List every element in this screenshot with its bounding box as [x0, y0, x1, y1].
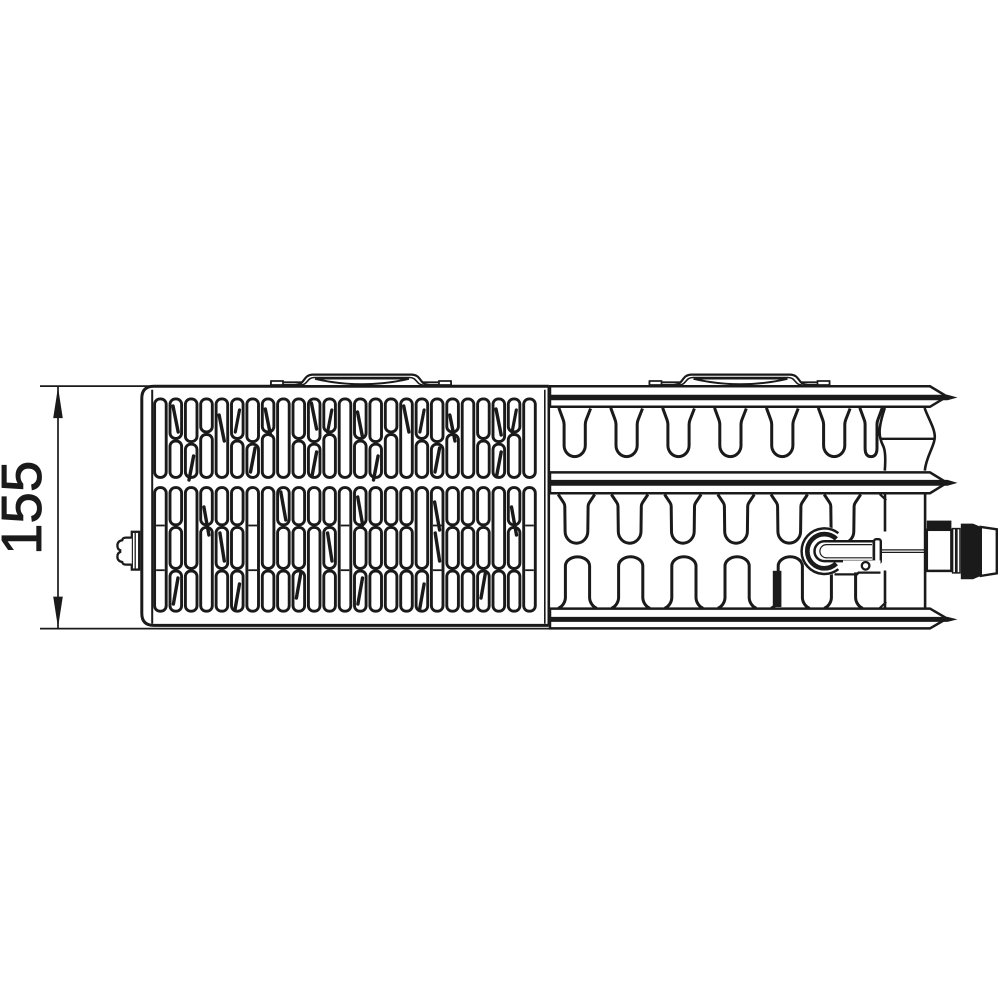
svg-text:155: 155 [0, 461, 53, 555]
